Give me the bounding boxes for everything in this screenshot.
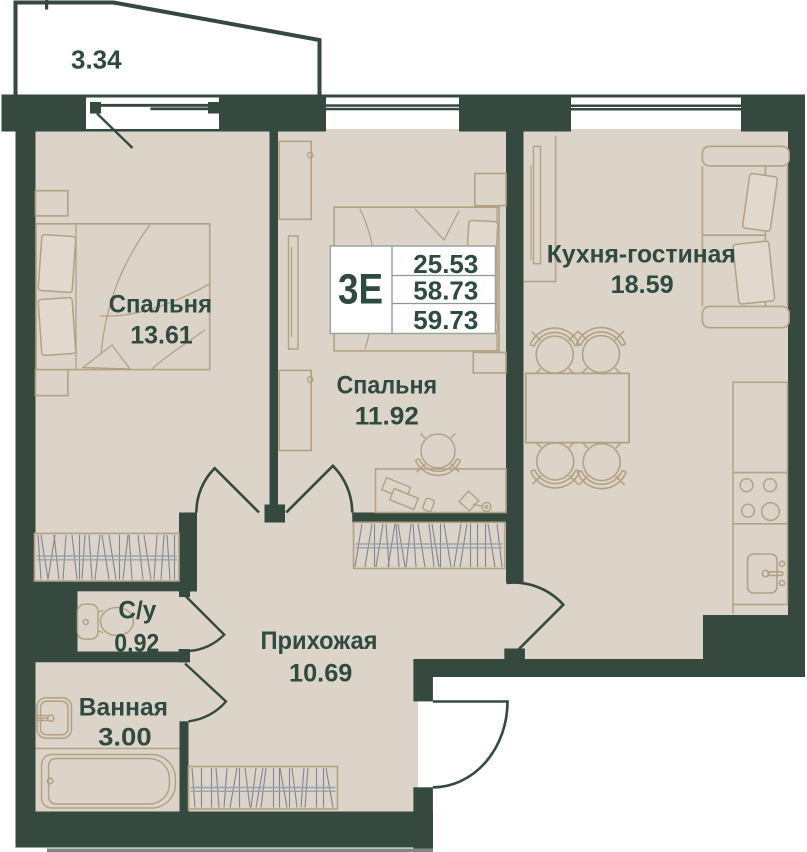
svg-text:Ванная: Ванная [79,694,168,722]
svg-text:11.92: 11.92 [355,403,419,431]
svg-text:3Е: 3Е [338,265,383,313]
svg-text:3.34: 3.34 [71,45,122,75]
svg-text:18.59: 18.59 [611,271,674,299]
svg-text:13.61: 13.61 [130,322,192,350]
svg-text:3.00: 3.00 [98,723,152,751]
svg-text:25.53: 25.53 [413,251,478,279]
svg-text:Кухня-гостиная: Кухня-гостиная [547,240,736,268]
svg-text:0.92: 0.92 [114,629,159,657]
svg-text:58.73: 58.73 [413,278,478,306]
svg-text:Спальня: Спальня [109,290,212,318]
svg-text:10.69: 10.69 [289,659,352,687]
svg-text:Прихожая: Прихожая [260,627,377,655]
svg-text:С/у: С/у [118,596,156,624]
svg-text:59.73: 59.73 [413,307,478,335]
svg-text:Спальня: Спальня [336,372,437,400]
